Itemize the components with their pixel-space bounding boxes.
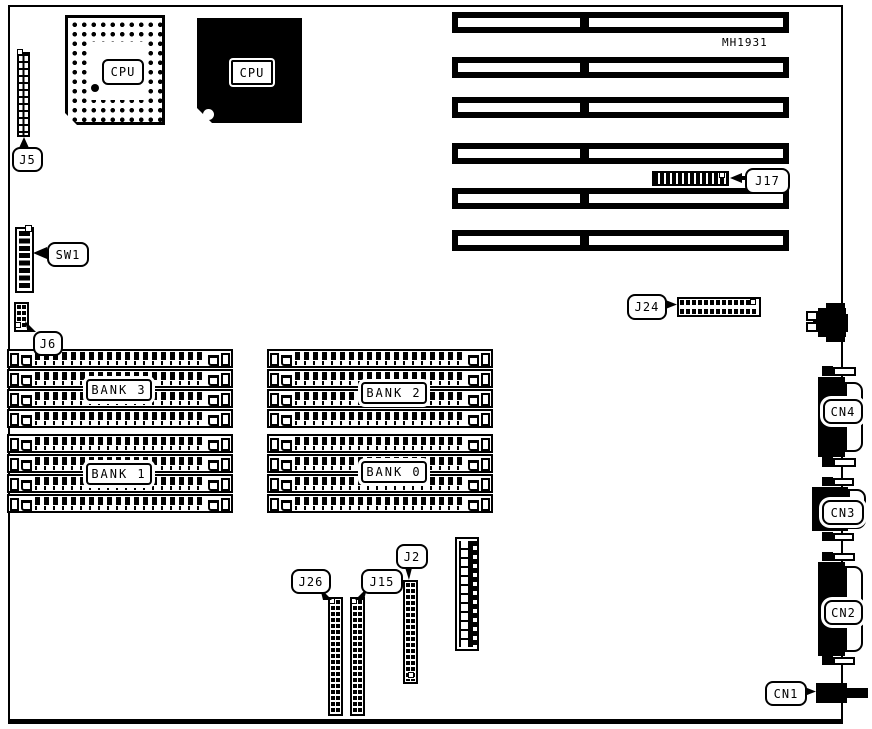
cn3-screw-tab bbox=[833, 478, 854, 486]
connector-j24 bbox=[677, 297, 761, 317]
simm-socket bbox=[267, 349, 493, 368]
cn4-screw-post bbox=[822, 366, 833, 376]
isa-slot-4 bbox=[452, 143, 789, 164]
connector-j17-pin1 bbox=[719, 172, 725, 178]
label-cn2: CN2 bbox=[824, 600, 863, 625]
connector-j2-pin1 bbox=[408, 672, 414, 678]
label-cn1: CN1 bbox=[765, 681, 807, 706]
board-part-number: MH1931 bbox=[722, 36, 768, 49]
label-j17: J17 bbox=[745, 168, 790, 194]
bank1-label: BANK 1 bbox=[86, 463, 152, 485]
bank0-label: BANK 0 bbox=[361, 461, 427, 483]
cn4-screw-post bbox=[822, 457, 833, 467]
simm-socket bbox=[7, 434, 233, 453]
dip-switch-sw1 bbox=[15, 227, 34, 293]
connector-j6-pin1 bbox=[15, 322, 21, 328]
port-cn1-plug bbox=[847, 688, 868, 698]
simm-socket bbox=[7, 494, 233, 513]
bank2-label: BANK 2 bbox=[361, 382, 427, 404]
simm-socket bbox=[267, 409, 493, 428]
motherboard-diagram: CPU CPU J5 SW1 J6 MH1931 J17 J24 BANK bbox=[0, 0, 872, 729]
cn3-screw-tab bbox=[833, 533, 854, 541]
isa-slot-3 bbox=[452, 97, 789, 118]
keyboard-connector bbox=[813, 314, 848, 332]
cn4-screw-tab bbox=[833, 367, 856, 376]
connector-j17 bbox=[652, 171, 729, 186]
sw1-pin1 bbox=[25, 225, 32, 232]
cn2-screw-post bbox=[822, 552, 833, 561]
connector-j24-pin1 bbox=[750, 299, 756, 305]
keyboard-connector bbox=[826, 336, 845, 342]
cn4-screw-tab bbox=[833, 458, 856, 467]
label-j6: J6 bbox=[33, 331, 63, 356]
label-j2: J2 bbox=[396, 544, 428, 569]
power-connector bbox=[455, 537, 479, 651]
connector-j5-pin1 bbox=[17, 49, 23, 55]
cpu-socket-label: CPU bbox=[102, 59, 144, 85]
isa-slot-5 bbox=[452, 188, 789, 209]
cpu-chip-pin1-dot bbox=[203, 109, 214, 120]
keyboard-connector-tab bbox=[806, 311, 818, 321]
cn2-screw-tab bbox=[833, 553, 855, 561]
simm-socket bbox=[267, 494, 493, 513]
isa-slot-1 bbox=[452, 12, 789, 33]
port-cn1 bbox=[816, 683, 847, 703]
isa-slot-2 bbox=[452, 57, 789, 78]
label-cn3: CN3 bbox=[822, 500, 864, 525]
bank3-label: BANK 3 bbox=[86, 379, 152, 401]
label-j24: J24 bbox=[627, 294, 667, 320]
label-sw1: SW1 bbox=[47, 242, 89, 267]
connector-j2 bbox=[403, 580, 418, 684]
label-j26: J26 bbox=[291, 569, 331, 594]
cn3-screw-post bbox=[822, 477, 833, 486]
cpu-socket-pin1-dot bbox=[91, 84, 99, 92]
cn2-screw-tab bbox=[833, 657, 855, 665]
cpu-chip-label: CPU bbox=[231, 60, 273, 85]
label-cn4: CN4 bbox=[823, 399, 863, 424]
cn3-screw-post bbox=[822, 532, 833, 541]
connector-j26 bbox=[328, 597, 343, 716]
connector-j5 bbox=[17, 52, 30, 137]
connector-j15 bbox=[350, 597, 365, 716]
simm-socket bbox=[267, 434, 493, 453]
cn2-screw-post bbox=[822, 656, 833, 665]
isa-slot-6 bbox=[452, 230, 789, 251]
keyboard-connector-tab bbox=[806, 322, 818, 332]
label-j5: J5 bbox=[12, 147, 43, 172]
simm-socket bbox=[7, 409, 233, 428]
label-j15: J15 bbox=[361, 569, 403, 594]
